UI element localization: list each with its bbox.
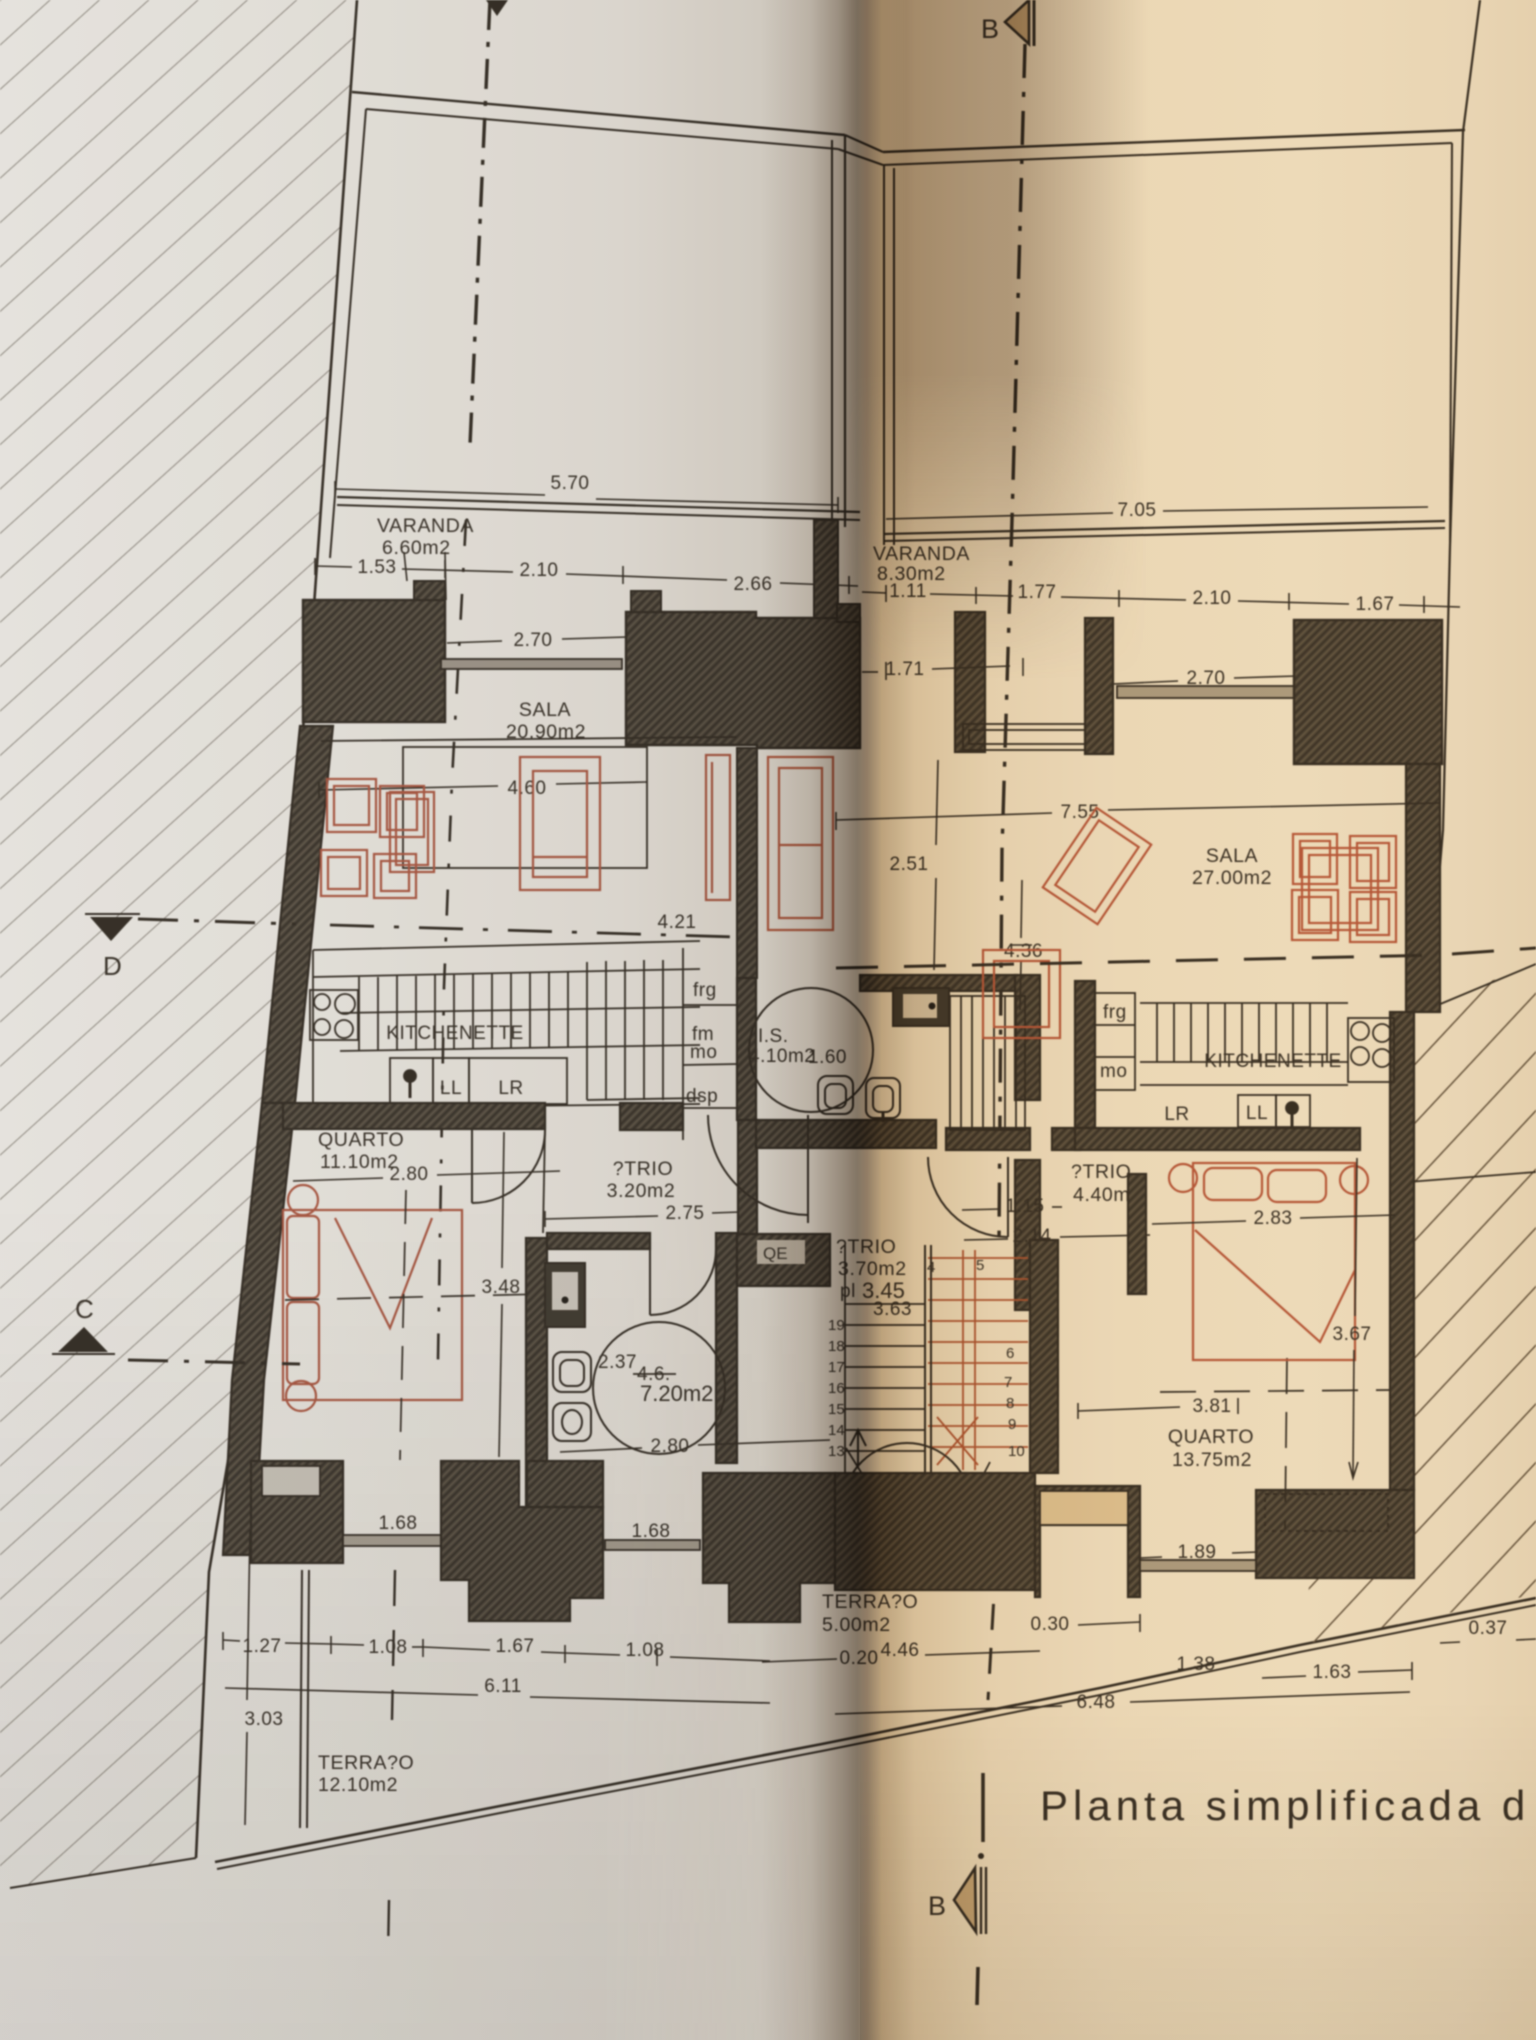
svg-text:1.08: 1.08 <box>369 1637 408 1658</box>
svg-text:D: D <box>103 951 122 981</box>
svg-text:1.11: 1.11 <box>889 581 927 602</box>
svg-text:4.60: 4.60 <box>508 778 547 799</box>
svg-text:SALA: SALA <box>1206 845 1258 867</box>
svg-text:4.21: 4.21 <box>658 912 697 933</box>
svg-text:1.77: 1.77 <box>1018 582 1057 603</box>
svg-text:3.70m2: 3.70m2 <box>838 1258 907 1280</box>
svg-text:15: 15 <box>828 1401 845 1418</box>
svg-text:2.10: 2.10 <box>520 560 559 581</box>
svg-text:10: 10 <box>1008 1443 1025 1460</box>
svg-text:LR: LR <box>498 1078 523 1099</box>
svg-text:2.70: 2.70 <box>514 630 553 651</box>
svg-text:0.37: 0.37 <box>1469 1618 1508 1639</box>
svg-text:pl: pl <box>840 1281 856 1302</box>
svg-text:4.46: 4.46 <box>881 1640 920 1661</box>
svg-text:2.80: 2.80 <box>651 1436 690 1457</box>
svg-text:13: 13 <box>828 1443 845 1460</box>
svg-text:4: 4 <box>927 1259 935 1276</box>
svg-text:2.51: 2.51 <box>890 854 929 875</box>
svg-text:19: 19 <box>828 1317 845 1334</box>
svg-text:LL: LL <box>1246 1103 1268 1124</box>
svg-text:6: 6 <box>1006 1345 1014 1362</box>
svg-text:dsp: dsp <box>686 1086 718 1107</box>
svg-text:5.00m2: 5.00m2 <box>822 1614 891 1636</box>
svg-text:0.20: 0.20 <box>840 1648 879 1669</box>
svg-text:VARANDA: VARANDA <box>873 543 970 565</box>
svg-text:5: 5 <box>976 1257 984 1274</box>
svg-text:2.83: 2.83 <box>1254 1208 1293 1229</box>
svg-text:2.75: 2.75 <box>666 1203 705 1224</box>
svg-text:3.03: 3.03 <box>245 1709 284 1730</box>
svg-text:1.53: 1.53 <box>358 557 397 578</box>
svg-text:6.48: 6.48 <box>1077 1692 1116 1713</box>
svg-text:0.30: 0.30 <box>1031 1614 1070 1635</box>
svg-text:1.08: 1.08 <box>626 1640 665 1661</box>
svg-text:5.70: 5.70 <box>551 473 590 494</box>
svg-text:9: 9 <box>1008 1416 1016 1433</box>
svg-text:7.05: 7.05 <box>1118 500 1157 521</box>
svg-text:3.81: 3.81 <box>1193 1396 1232 1417</box>
svg-text:LR: LR <box>1164 1104 1189 1125</box>
svg-text:?TRIO: ?TRIO <box>1071 1161 1131 1183</box>
svg-text:3.63: 3.63 <box>873 1299 912 1320</box>
svg-text:1.67: 1.67 <box>1356 594 1395 615</box>
svg-text:2.10: 2.10 <box>1193 588 1232 609</box>
svg-text:frg: frg <box>1103 1002 1127 1023</box>
svg-text:TERRA?O: TERRA?O <box>822 1591 918 1613</box>
svg-text:3.20m2: 3.20m2 <box>607 1180 676 1202</box>
svg-text:1.68: 1.68 <box>379 1513 418 1534</box>
svg-text:frg: frg <box>693 980 717 1001</box>
svg-text:1.38: 1.38 <box>1177 1654 1216 1675</box>
svg-text:1.60: 1.60 <box>808 1047 847 1068</box>
svg-text:?TRIO: ?TRIO <box>613 1158 673 1180</box>
svg-text:12.10m2: 12.10m2 <box>318 1774 398 1796</box>
svg-text:mo: mo <box>1100 1061 1127 1082</box>
svg-text:18: 18 <box>828 1338 845 1355</box>
svg-text:C: C <box>75 1294 94 1324</box>
svg-text:2.66: 2.66 <box>734 574 773 595</box>
svg-text:LL: LL <box>440 1078 462 1099</box>
svg-text:16: 16 <box>828 1380 845 1397</box>
svg-text:1.71: 1.71 <box>886 659 925 680</box>
svg-text:QUARTO: QUARTO <box>1168 1426 1254 1448</box>
svg-text:6.60m2: 6.60m2 <box>382 537 451 559</box>
svg-text:2.37: 2.37 <box>598 1352 637 1373</box>
svg-text:1.68: 1.68 <box>632 1521 671 1542</box>
svg-text:QE: QE <box>763 1244 788 1263</box>
svg-text:7: 7 <box>1004 1374 1012 1391</box>
svg-text:B: B <box>981 14 999 44</box>
svg-text:KITCHENETTE: KITCHENETTE <box>386 1023 523 1044</box>
svg-text:QUARTO: QUARTO <box>318 1129 404 1151</box>
svg-text:14: 14 <box>828 1422 845 1439</box>
svg-text:3.67: 3.67 <box>1333 1324 1372 1345</box>
svg-text:7.20m2: 7.20m2 <box>640 1381 713 1406</box>
svg-text:27.00m2: 27.00m2 <box>1192 867 1272 889</box>
svg-text:mo: mo <box>690 1042 717 1063</box>
svg-text:KITCHENETTE: KITCHENETTE <box>1204 1051 1341 1072</box>
svg-text:4.36: 4.36 <box>1004 941 1043 962</box>
svg-text:2.80: 2.80 <box>390 1164 429 1185</box>
svg-text:8: 8 <box>1006 1395 1014 1412</box>
svg-text:11.10m2: 11.10m2 <box>320 1151 399 1173</box>
svg-text:3.48: 3.48 <box>482 1277 521 1298</box>
svg-text:Planta simplificada d: Planta simplificada d <box>1040 1782 1530 1829</box>
svg-text:B: B <box>928 1891 946 1921</box>
svg-text:I.S.: I.S. <box>758 1026 789 1047</box>
svg-text:1.67: 1.67 <box>496 1636 535 1657</box>
svg-text:4.10m2: 4.10m2 <box>749 1046 815 1067</box>
svg-text:VARANDA: VARANDA <box>377 515 474 537</box>
svg-text:1.63: 1.63 <box>1313 1662 1352 1683</box>
svg-text:TERRA?O: TERRA?O <box>318 1752 414 1774</box>
svg-text:1.15: 1.15 <box>1006 1196 1045 1217</box>
svg-text:SALA: SALA <box>519 699 571 721</box>
svg-text:13.75m2: 13.75m2 <box>1172 1449 1252 1471</box>
svg-text:6.11: 6.11 <box>484 1676 522 1697</box>
svg-text:20.90m2: 20.90m2 <box>506 721 586 743</box>
svg-text:17: 17 <box>828 1359 845 1376</box>
